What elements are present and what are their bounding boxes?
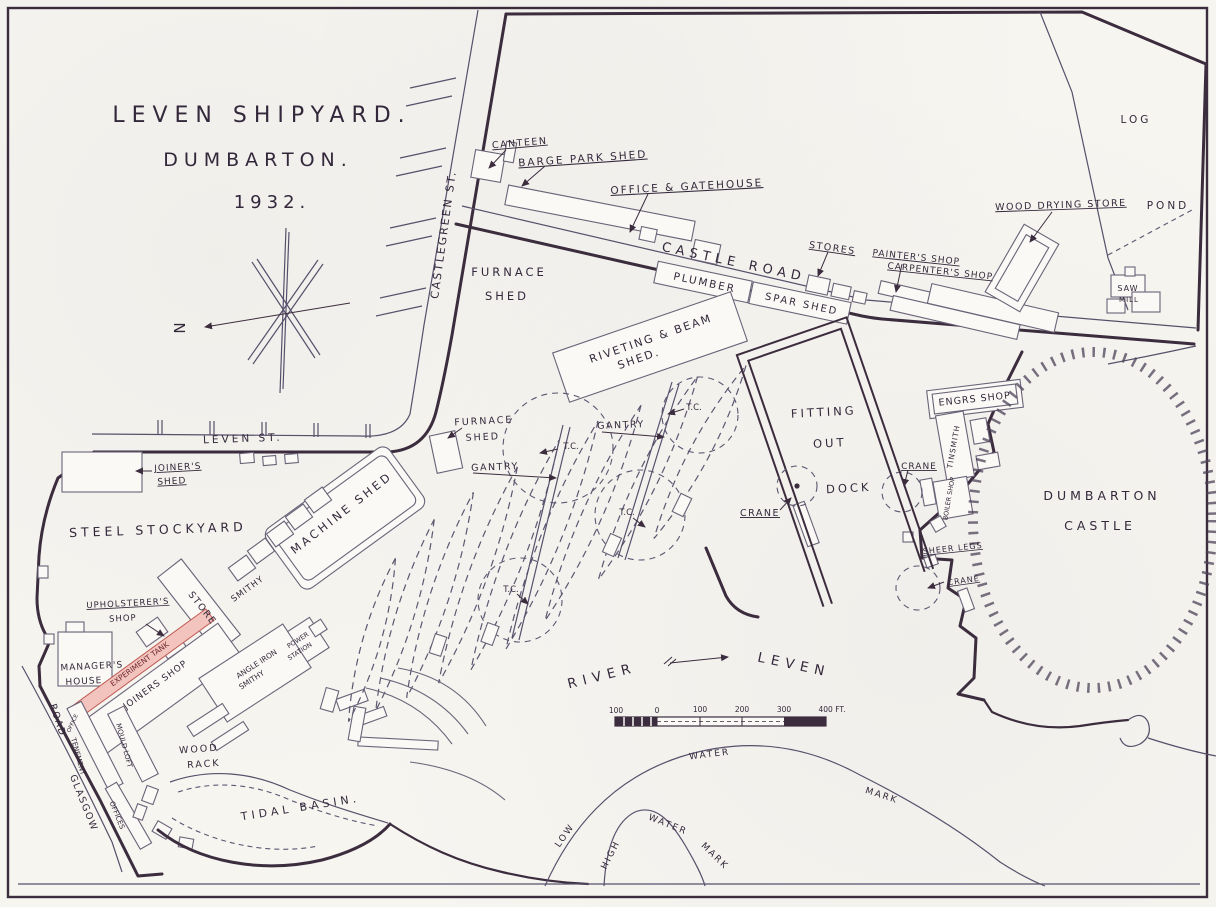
label-tc: T.C. [502, 585, 519, 595]
wood-rack-frame [358, 737, 438, 750]
crane-pivot [794, 483, 799, 488]
gantry-left-arrow [473, 473, 556, 478]
label-mark-low: MARK [864, 786, 900, 806]
label-steel-stockyard: STEEL STOCKYARD [69, 519, 247, 540]
label-smithy: SMITHY [230, 574, 267, 604]
label-saw: SAW [1117, 284, 1138, 293]
river-flow-arrow [670, 657, 728, 663]
slipway-hull [430, 464, 527, 687]
slipway-hull [645, 361, 755, 543]
label-rack: RACK [187, 758, 221, 771]
wood-rack-frame [187, 704, 229, 737]
scale-bar: 100 0 100 200 300 400 FT. [609, 705, 846, 726]
label-wood-drying-store: WOOD DRYING STORE [995, 198, 1127, 214]
building [44, 634, 54, 644]
label-pond: POND [1147, 200, 1190, 212]
slip-foot-block [672, 493, 692, 516]
map-title-line2: DUMBARTON. [163, 149, 353, 171]
compass-north-arrow [205, 303, 350, 327]
label-dumbarton: DUMBARTON [1043, 488, 1160, 503]
label-upholsterers-shop: SHOP [109, 613, 137, 624]
crane-radius [896, 566, 940, 610]
slip-foot-block [602, 533, 621, 556]
canteen-building [471, 150, 505, 183]
castlegreen-leven-street-west-line [92, 10, 478, 436]
label-log: LOG [1121, 114, 1152, 126]
label-canteen: CANTEEN [492, 136, 548, 152]
street-label-castlegreen: CASTLEGREEN ST. [428, 169, 459, 299]
wood-rack-frame [348, 706, 366, 742]
label-managers-house: HOUSE [65, 676, 102, 688]
label-tidal-basin: TIDAL BASIN. [239, 792, 361, 824]
label-stores: STORES [808, 240, 856, 257]
compass-north-label: N [170, 322, 188, 333]
map-title-line1: LEVEN SHIPYARD. [112, 103, 411, 128]
label-joiners-shed2: SHED [157, 476, 187, 488]
label-castle: CASTLE [1064, 518, 1136, 533]
building [38, 566, 48, 578]
castle-road-end-line [1108, 346, 1196, 364]
scale-tick-label: 100 [609, 706, 624, 715]
label-fitting: FITTING [791, 403, 857, 420]
label-furnace-shed-lower2: SHED [465, 431, 500, 444]
label-wood: WOOD [179, 743, 219, 757]
label-managers: MANAGER'S [60, 660, 123, 673]
crane-leader [904, 470, 908, 486]
label-tc: T.C. [562, 442, 579, 452]
label-gantry-left: GANTRY [471, 461, 519, 474]
shipyard-map-scan: N [0, 0, 1216, 907]
slip-foot-block [320, 687, 339, 712]
stores-building [852, 291, 867, 304]
building [240, 452, 255, 463]
label-furnace-shed-upper: FURNACE [471, 265, 547, 279]
label-furnace-shed-lower: FURNACE [454, 414, 514, 428]
slip-foot-block [481, 623, 499, 646]
wood-drying-store-building [985, 224, 1059, 312]
log-pond-dashed-edge [1108, 210, 1192, 255]
scale-end-label: 400 FT. [819, 705, 846, 714]
stores-leader [818, 252, 828, 276]
scale-bar-right-block [784, 717, 826, 726]
label-furnace-shed-upper2: SHED [485, 289, 529, 303]
low-water-mark-line [545, 746, 1045, 886]
label-dock: DOCK [826, 480, 872, 496]
stores-building [831, 283, 851, 299]
label-water-high: WATER [647, 813, 689, 838]
map-title-line3: 1932. [234, 192, 311, 213]
stores-building [806, 275, 831, 295]
label-upholsterers: UPHOLSTERER'S [86, 597, 169, 611]
tc-arrow [540, 449, 558, 453]
scale-tick-label: 200 [735, 705, 750, 714]
gatehouse-building [639, 226, 657, 242]
label-high: HIGH [600, 839, 623, 871]
quay-corner [706, 548, 758, 617]
crane-leader [928, 582, 944, 588]
label-mark-high: MARK [699, 841, 730, 872]
smithy-building [228, 555, 255, 581]
building [285, 453, 299, 463]
street-label-leven: LEVEN ST. [203, 432, 283, 447]
saw-mill-chimney [1125, 267, 1135, 276]
scale-tick-label: 100 [693, 705, 708, 714]
slipway-hull [367, 517, 443, 714]
slipway-hull [497, 417, 608, 653]
building [263, 455, 277, 465]
label-river: RIVER [566, 660, 638, 693]
building [133, 804, 147, 821]
label-office-gatehouse: OFFICE & GATEHOUSE [610, 177, 763, 197]
label-tc: T.C. [618, 508, 635, 518]
street-label-road: ROAD [47, 702, 68, 737]
label-crane-east: CRANE [901, 462, 937, 472]
shoreline-east [984, 700, 1128, 727]
label-out: OUT [813, 435, 847, 451]
joiners-shed-building [62, 452, 142, 492]
north-boundary-line [506, 12, 1206, 330]
shoreline [390, 824, 588, 884]
label-crane-dock: CRANE [740, 508, 780, 519]
label-gantry-right: GANTRY [597, 419, 645, 432]
slipway-hull [398, 489, 483, 700]
label-joiners-shed: JOINER'S [153, 462, 202, 475]
tidal-basin [158, 774, 588, 884]
yard-rails [366, 668, 505, 800]
scale-tick-label: 0 [655, 706, 660, 715]
label-mill: MILL [1119, 296, 1139, 304]
compass-rose: N [170, 228, 350, 393]
crane-rail [793, 501, 819, 546]
crane-radius [662, 377, 738, 453]
label-water-low: WATER [689, 748, 731, 763]
building [66, 622, 84, 632]
rail-curves [366, 668, 505, 800]
scale-tick-label: 300 [777, 705, 792, 714]
label-leven: LEVEN [756, 650, 832, 681]
gantry-track [512, 425, 570, 640]
label-tc: T.C. [685, 403, 702, 413]
slipways [340, 361, 755, 724]
building [142, 785, 159, 804]
river-flow-arrow-tail [664, 657, 676, 666]
building [958, 588, 975, 612]
leven-shipyard-map: N [0, 0, 1216, 907]
slip-foot-block [429, 634, 447, 657]
log-pond-west-edge [1040, 12, 1128, 310]
furnace-shed-building [429, 431, 462, 474]
label-barge-park-shed: BARGE PARK SHED [518, 149, 648, 170]
label-crane-south: CRANE [947, 574, 980, 587]
